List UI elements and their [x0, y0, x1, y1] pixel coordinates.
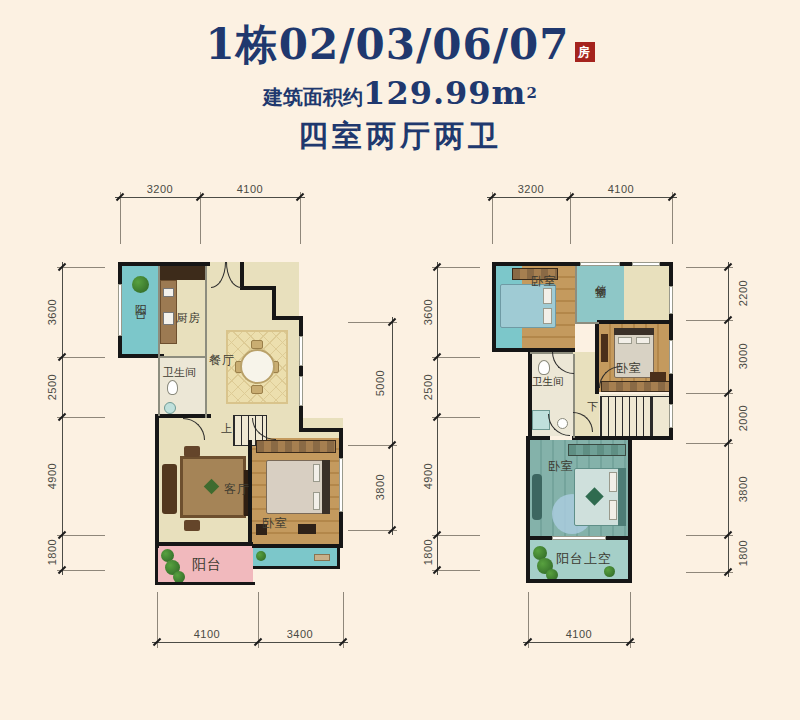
- bed-master-pillow: [609, 472, 617, 492]
- wall: [526, 440, 530, 583]
- interior-wall: [575, 266, 577, 324]
- witness-line: [432, 570, 480, 571]
- dim-value: 4900: [423, 454, 435, 498]
- label-master-bedroom: 卧室: [548, 460, 574, 474]
- dim-value: 1800: [738, 531, 750, 575]
- interior-wall: [577, 322, 599, 324]
- dimension-line: [728, 262, 729, 577]
- dim-value: 4100: [591, 184, 651, 195]
- shelf-e: [601, 334, 608, 362]
- plant: [604, 566, 615, 577]
- wall: [526, 579, 632, 583]
- room-storage: [577, 266, 624, 324]
- witness-line: [432, 417, 480, 418]
- shower-2f: [532, 410, 550, 430]
- wardrobe-master: [568, 444, 626, 456]
- floorplan-page: 1栋02/03/06/07房 建筑面积约129.99m2 四室两厅两卫 上: [0, 0, 800, 720]
- label-bedroom-nw: 卧室: [531, 275, 557, 289]
- label-balcony-void: 阳台上空: [556, 552, 612, 567]
- bed-master-pillow: [609, 500, 617, 520]
- floor-plan-level2: 下: [0, 0, 800, 720]
- bed-e-pillow: [618, 337, 632, 344]
- dim-value: 3800: [738, 467, 750, 511]
- bed-nw-pillow: [543, 308, 552, 324]
- witness-line: [672, 192, 673, 244]
- toilet-2f: [538, 360, 550, 375]
- wall: [572, 436, 632, 440]
- bed-nw-pillow: [543, 288, 552, 304]
- bed-master-headboard: [618, 468, 626, 526]
- wall: [528, 352, 532, 440]
- window: [669, 404, 673, 428]
- label-storage: 储物室: [594, 276, 607, 279]
- dim-value: 3200: [501, 184, 561, 195]
- dim-value: 2000: [738, 396, 750, 440]
- dim-value: 2500: [423, 365, 435, 409]
- dresser-master: [532, 474, 542, 520]
- bed-e-headboard: [614, 328, 654, 335]
- witness-line: [432, 267, 480, 268]
- dim-value: 3600: [423, 290, 435, 334]
- window: [669, 286, 673, 314]
- label-bedroom-e: 卧室: [616, 362, 642, 376]
- stairs-2f: [600, 396, 652, 437]
- bed-e-pillow: [636, 337, 650, 344]
- dimension-line: [437, 262, 438, 575]
- stairs-down-label: 下: [587, 400, 599, 413]
- dim-value: 4100: [549, 629, 609, 640]
- window: [580, 262, 620, 266]
- dim-value: 1800: [423, 530, 435, 574]
- witness-line: [570, 192, 571, 244]
- wall: [628, 440, 632, 583]
- witness-line: [432, 535, 480, 536]
- wall: [597, 320, 673, 324]
- window: [552, 536, 606, 540]
- room-hall-top: [624, 266, 671, 322]
- witness-line: [492, 192, 493, 244]
- label-bathroom-2f: 卫生间: [532, 375, 564, 387]
- stairs-landing: [652, 396, 670, 437]
- dim-value: 3000: [738, 334, 750, 378]
- dim-value: 2200: [738, 271, 750, 315]
- wall: [492, 262, 496, 352]
- window: [669, 340, 673, 374]
- window: [632, 262, 660, 266]
- witness-line: [432, 357, 480, 358]
- dimension-line: [487, 197, 677, 198]
- dimension-line: [523, 642, 635, 643]
